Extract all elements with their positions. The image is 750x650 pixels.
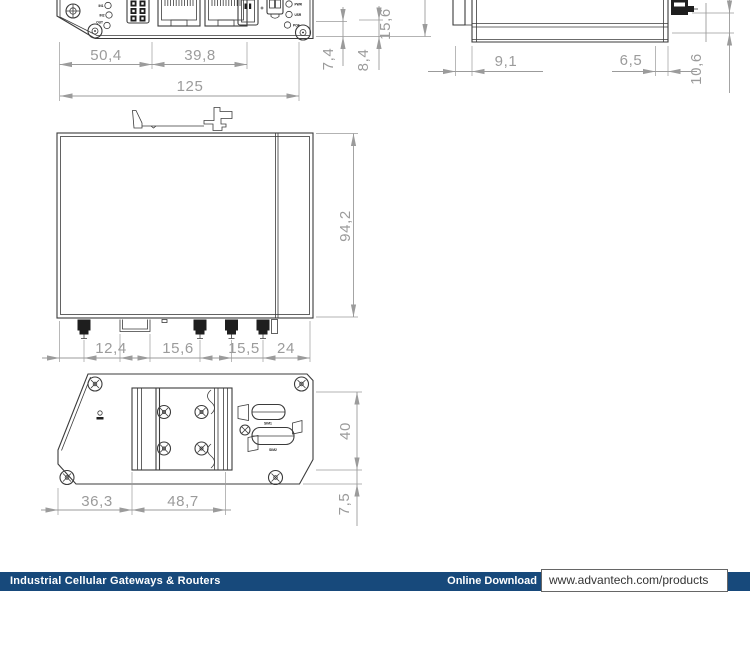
footer-download-label: Online Download bbox=[447, 572, 537, 591]
dim-front-left: 50,4 bbox=[90, 47, 122, 64]
dim-rear-din: 48,7 bbox=[167, 493, 199, 510]
dim-side-front: 6,5 bbox=[620, 52, 643, 69]
sim-slot-area: SIM1 SIM2 bbox=[238, 405, 302, 453]
footer-category-label: Industrial Cellular Gateways & Routers bbox=[10, 572, 221, 591]
led-label-pwr: PWR bbox=[295, 2, 303, 6]
spring-clip bbox=[208, 390, 215, 468]
sim-eject-tab-1 bbox=[238, 405, 249, 421]
dim-rear-left: 36,3 bbox=[81, 493, 113, 510]
dim-front-mid: 39,8 bbox=[184, 47, 216, 64]
dimension-drawing: IN1 IN2 OUT bbox=[0, 0, 750, 570]
sim1-label: SIM1 bbox=[264, 422, 272, 426]
led-group-right: PWR USR POE bbox=[284, 1, 302, 28]
usb-port bbox=[238, 0, 264, 25]
top-view bbox=[57, 108, 313, 339]
side-body bbox=[472, 0, 668, 42]
dim-ant-4: 24 bbox=[277, 340, 295, 357]
dim-ant-3: 15,5 bbox=[228, 340, 260, 357]
dim-ant-2: 15,6 bbox=[162, 340, 194, 357]
aux-connector bbox=[267, 0, 283, 18]
front-panel-view: IN1 IN2 OUT bbox=[57, 0, 313, 40]
ethernet-port-2 bbox=[205, 0, 247, 26]
led-in2 bbox=[106, 12, 112, 18]
top-body-outline bbox=[57, 133, 313, 318]
led-pwr bbox=[286, 1, 292, 7]
dim-front-total: 125 bbox=[177, 78, 204, 95]
dim-ant-1: 12,4 bbox=[95, 340, 127, 357]
din-clip bbox=[133, 108, 233, 131]
led-out bbox=[104, 22, 110, 28]
sim2-label: SIM2 bbox=[269, 448, 277, 452]
dim-front-offset2: 8,4 bbox=[355, 49, 372, 72]
footer-url-box: www.advantech.com/products bbox=[541, 569, 728, 592]
thin-tab bbox=[272, 320, 278, 334]
footer-url: www.advantech.com/products bbox=[549, 573, 708, 587]
dim-front-offset1: 7,4 bbox=[320, 48, 337, 71]
power-connector bbox=[127, 0, 149, 23]
din-rail-bracket bbox=[132, 388, 232, 470]
small-tab bbox=[162, 320, 167, 323]
ethernet-port-1 bbox=[158, 0, 200, 26]
led-in1 bbox=[105, 2, 111, 8]
rear-view: SIM1 SIM2 bbox=[58, 374, 313, 485]
side-flange bbox=[453, 0, 465, 25]
sma-connector-right bbox=[296, 25, 311, 40]
led-label-in1: IN1 bbox=[99, 4, 104, 8]
led-label-usr: USR bbox=[295, 13, 302, 17]
sma-connector-left bbox=[88, 24, 102, 38]
antenna-stub-2 bbox=[194, 320, 207, 339]
dim-rear-height: 40 bbox=[337, 422, 354, 440]
dimensions: 50,4 39,8 125 7,4 8,4 15,6 9,1 6,5 10,6 … bbox=[41, 0, 734, 526]
dim-front-height: 15,6 bbox=[377, 8, 394, 40]
dim-side-rear: 9,1 bbox=[495, 53, 518, 70]
antenna-knob bbox=[66, 4, 80, 18]
antenna-stub-4 bbox=[257, 320, 270, 339]
bottom-notch bbox=[120, 320, 150, 332]
dim-top-depth: 94,2 bbox=[337, 210, 354, 242]
sim-cover-screw bbox=[240, 425, 250, 435]
sim-eject-tab-2 bbox=[293, 421, 303, 435]
led-label-out: OUT bbox=[96, 20, 103, 24]
led-label-in2: IN2 bbox=[100, 13, 105, 17]
dim-rear-foot: 7,5 bbox=[336, 493, 353, 516]
top-body-divider bbox=[276, 133, 279, 318]
antenna-stub-1 bbox=[78, 320, 91, 339]
antenna-stub-3 bbox=[225, 320, 238, 339]
corner-screws bbox=[60, 377, 309, 485]
side-view bbox=[453, 0, 698, 42]
led-poe bbox=[284, 22, 290, 28]
led-usr bbox=[286, 11, 292, 17]
plus-mark bbox=[261, 7, 264, 10]
dim-side-connector: 10,6 bbox=[688, 53, 705, 85]
datasheet-page: IN1 IN2 OUT bbox=[0, 0, 750, 650]
ground-point bbox=[97, 411, 104, 420]
